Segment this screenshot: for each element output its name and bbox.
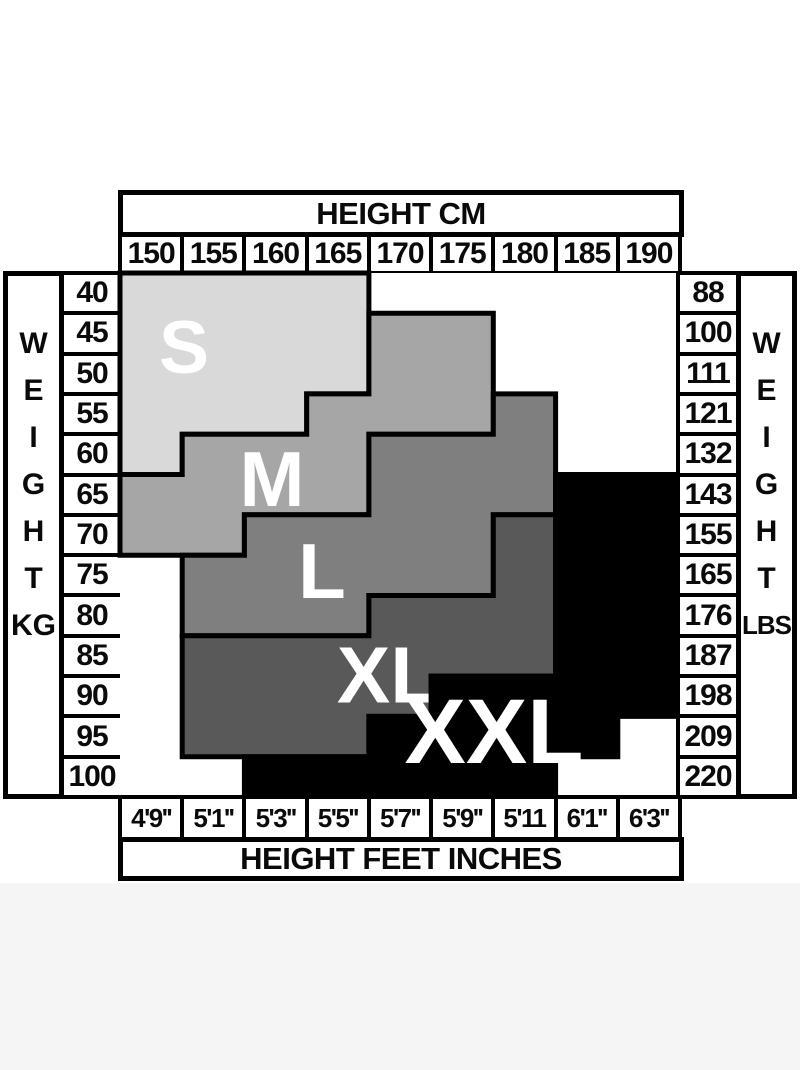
weight-letter: W bbox=[752, 320, 780, 367]
weight-kg-cell: 50 bbox=[60, 352, 124, 396]
height-ft-cell: 4'9'' bbox=[118, 795, 184, 841]
weight-letter: G bbox=[22, 461, 45, 508]
weight-letter: T bbox=[24, 555, 42, 602]
weight-kg-axis-label: WEIGHTKG bbox=[3, 271, 64, 799]
height-cm-cell: 170 bbox=[367, 233, 433, 275]
height-ft-cell: 5'7'' bbox=[367, 795, 433, 841]
height-cm-cell: 185 bbox=[554, 233, 620, 275]
weight-letter: W bbox=[19, 320, 47, 367]
weight-kg-scale: 404550556065707580859095100 bbox=[60, 271, 126, 799]
weight-lbs-cell: 209 bbox=[676, 714, 740, 758]
height-ft-cell: 5'9'' bbox=[429, 795, 495, 841]
height-cm-cell: 160 bbox=[242, 233, 308, 275]
height-ft-cell: 5'5'' bbox=[305, 795, 371, 841]
height-cm-header-box: HEIGHT CM bbox=[118, 190, 684, 237]
height-cm-title: HEIGHT CM bbox=[316, 196, 485, 232]
height-cm-cell: 175 bbox=[429, 233, 495, 275]
weight-kg-cell: 45 bbox=[60, 311, 124, 355]
weight-kg-cell: 70 bbox=[60, 513, 124, 557]
weight-kg-cell: 75 bbox=[60, 553, 124, 597]
weight-kg-cell: 40 bbox=[60, 271, 124, 315]
weight-kg-cell: 100 bbox=[60, 755, 124, 799]
height-ft-header-box: HEIGHT FEET INCHES bbox=[118, 837, 684, 881]
height-ft-cell: 6'3'' bbox=[616, 795, 682, 841]
height-ft-cell: 6'1'' bbox=[554, 795, 620, 841]
weight-letter: G bbox=[755, 461, 778, 508]
weight-lbs-cell: 132 bbox=[676, 432, 740, 476]
weight-unit-label: LBS bbox=[742, 602, 791, 649]
height-cm-cell: 190 bbox=[616, 233, 682, 275]
weight-lbs-cell: 143 bbox=[676, 473, 740, 517]
size-regions-canvas: SMLXLXXL bbox=[120, 273, 680, 797]
weight-kg-cell: 65 bbox=[60, 473, 124, 517]
page-bottom-area bbox=[0, 883, 800, 1070]
weight-lbs-cell: 165 bbox=[676, 553, 740, 597]
weight-lbs-scale: 88100111121132143155165176187198209220 bbox=[676, 271, 742, 799]
size-label-XXL: XXL bbox=[405, 681, 584, 783]
weight-letter: T bbox=[757, 555, 775, 602]
weight-lbs-cell: 121 bbox=[676, 392, 740, 436]
weight-lbs-cell: 111 bbox=[676, 352, 740, 396]
weight-kg-cell: 55 bbox=[60, 392, 124, 436]
height-ft-cell: 5'11 bbox=[491, 795, 557, 841]
weight-lbs-axis-label: WEIGHTLBS bbox=[736, 271, 797, 799]
weight-letter: I bbox=[762, 414, 770, 461]
weight-kg-cell: 90 bbox=[60, 674, 124, 718]
height-ft-cell: 5'3'' bbox=[242, 795, 308, 841]
height-cm-cell: 150 bbox=[118, 233, 184, 275]
weight-lbs-cell: 187 bbox=[676, 634, 740, 678]
height-ft-scale: 4'9''5'1''5'3''5'5''5'7''5'9''5'116'1''6… bbox=[118, 795, 684, 841]
weight-kg-cell: 60 bbox=[60, 432, 124, 476]
weight-lbs-cell: 88 bbox=[676, 271, 740, 315]
size-label-S: S bbox=[159, 305, 209, 389]
height-ft-cell: 5'1'' bbox=[180, 795, 246, 841]
weight-letter: E bbox=[23, 367, 43, 414]
height-ft-title: HEIGHT FEET INCHES bbox=[240, 841, 562, 877]
weight-kg-cell: 80 bbox=[60, 593, 124, 637]
weight-letter: H bbox=[756, 508, 778, 555]
size-label-L: L bbox=[298, 527, 346, 615]
height-cm-cell: 180 bbox=[491, 233, 557, 275]
height-cm-scale: 150155160165170175180185190 bbox=[118, 233, 684, 275]
weight-letter: H bbox=[23, 508, 45, 555]
weight-lbs-cell: 176 bbox=[676, 593, 740, 637]
weight-kg-cell: 85 bbox=[60, 634, 124, 678]
height-cm-cell: 155 bbox=[180, 233, 246, 275]
weight-lbs-cell: 155 bbox=[676, 513, 740, 557]
weight-lbs-cell: 198 bbox=[676, 674, 740, 718]
weight-unit-label: KG bbox=[11, 602, 56, 649]
height-cm-cell: 165 bbox=[305, 233, 371, 275]
size-label-M: M bbox=[240, 435, 305, 523]
weight-letter: E bbox=[756, 367, 776, 414]
weight-lbs-cell: 220 bbox=[676, 755, 740, 799]
weight-letter: I bbox=[29, 414, 37, 461]
weight-lbs-cell: 100 bbox=[676, 311, 740, 355]
weight-kg-cell: 95 bbox=[60, 714, 124, 758]
